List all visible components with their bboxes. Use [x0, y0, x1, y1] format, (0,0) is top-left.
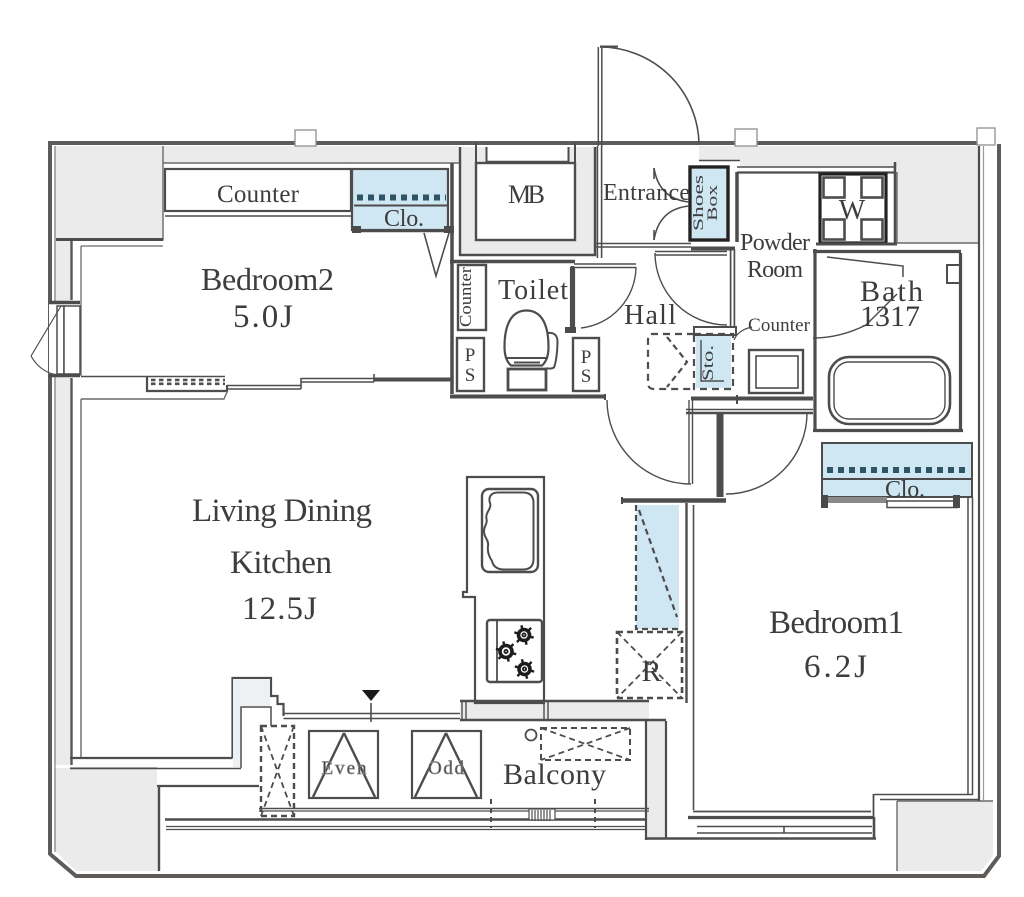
svg-text:Hall: Hall [624, 300, 676, 331]
svg-text:P: P [581, 347, 592, 368]
svg-text:R: R [641, 655, 661, 688]
svg-text:S: S [581, 366, 592, 387]
svg-text:Counter: Counter [217, 181, 300, 208]
svg-text:Living Dining: Living Dining [192, 493, 372, 529]
svg-text:Odd: Odd [428, 758, 465, 779]
svg-text:W: W [839, 195, 866, 226]
svg-text:Box: Box [705, 184, 721, 221]
svg-text:Kitchen: Kitchen [230, 545, 332, 581]
svg-text:Counter: Counter [456, 267, 475, 327]
svg-text:P: P [465, 345, 476, 366]
svg-text:Toilet: Toilet [498, 275, 568, 306]
svg-text:6.2J: 6.2J [804, 649, 867, 685]
svg-text:Powder: Powder [740, 230, 810, 256]
svg-text:MB: MB [508, 180, 545, 209]
svg-text:1317: 1317 [860, 300, 920, 333]
svg-text:Counter: Counter [748, 315, 811, 336]
svg-text:5.0J: 5.0J [233, 299, 293, 335]
svg-text:Entrance: Entrance [603, 180, 690, 206]
svg-text:Clo.: Clo. [885, 477, 925, 503]
svg-text:Clo.: Clo. [384, 206, 424, 232]
svg-text:Bedroom2: Bedroom2 [201, 261, 334, 297]
svg-text:Bedroom1: Bedroom1 [769, 605, 904, 641]
svg-text:S: S [465, 365, 476, 386]
svg-text:Room: Room [747, 257, 803, 283]
svg-text:Balcony: Balcony [503, 758, 606, 791]
svg-text:Even: Even [322, 758, 368, 779]
svg-text:Sto.: Sto. [700, 345, 717, 381]
svg-text:12.5J: 12.5J [242, 591, 317, 627]
